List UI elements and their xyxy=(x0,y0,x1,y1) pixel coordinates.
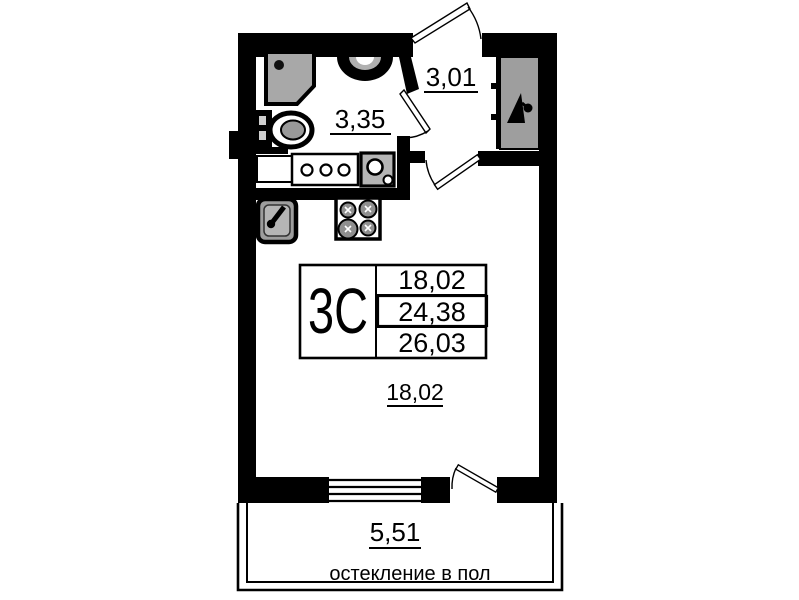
vanity-counter xyxy=(257,154,358,185)
wall-bottom-right xyxy=(497,477,557,503)
shower-tray xyxy=(266,52,314,104)
wall-left xyxy=(238,33,256,503)
living-room-area-label: 18,02 xyxy=(386,379,444,405)
bathroom-area-label: 3,35 xyxy=(335,104,386,134)
kitchen-sink xyxy=(258,199,296,242)
total-area-with-balcony-value: 26,03 xyxy=(398,328,466,358)
living-room-door xyxy=(426,155,481,190)
washing-machine xyxy=(361,153,394,186)
stove xyxy=(336,198,380,239)
total-area-value: 24,38 xyxy=(398,297,466,327)
wardrobe xyxy=(500,57,539,149)
counter-knob-icon xyxy=(339,165,350,176)
toilet-tank-detail xyxy=(259,131,266,140)
living-area-value: 18,02 xyxy=(398,265,466,295)
toilet xyxy=(256,110,312,148)
floor-plan-drawing: 3C 18,02 24,38 26,03 3,35 3,01 18,02 5,5… xyxy=(0,0,799,600)
living-room-door-swing-arc xyxy=(426,160,435,185)
faucet-base-icon xyxy=(267,220,275,228)
floor-plan-page: 3C 18,02 24,38 26,03 3,35 3,01 18,02 5,5… xyxy=(0,0,799,600)
window xyxy=(329,477,421,503)
living-room-door-leaf xyxy=(434,155,480,190)
burner-icon xyxy=(339,220,358,239)
wardrobe-pivot-lower xyxy=(491,114,496,120)
unit-type-label: 3C xyxy=(308,275,368,347)
wall-right xyxy=(539,33,557,503)
balcony-area-label: 5,51 xyxy=(370,517,421,547)
balcony-glazing-note: остекление в пол xyxy=(329,563,490,585)
burner-icon xyxy=(361,221,376,236)
counter-divider xyxy=(256,147,288,154)
kitchen-sink-inner xyxy=(264,205,290,236)
entrance-door xyxy=(411,3,481,43)
area-info-table: 3C 18,02 24,38 26,03 xyxy=(300,265,487,358)
washbasin xyxy=(337,57,393,81)
washing-machine-dial-icon xyxy=(384,176,393,185)
balcony-door-leaf xyxy=(456,465,499,492)
burner-icon xyxy=(341,203,356,218)
wall-bottom-left xyxy=(238,477,329,503)
wall-hall-south xyxy=(478,151,539,166)
wall-bathroom-east-upper xyxy=(399,57,419,94)
counter-left-section xyxy=(257,156,292,182)
shower xyxy=(266,52,314,104)
bathroom-door xyxy=(400,90,430,138)
hall-area-label: 3,01 xyxy=(426,62,477,92)
balcony-door xyxy=(452,465,498,492)
bathroom-door-leaf xyxy=(400,90,430,133)
shower-drain-icon xyxy=(274,60,284,70)
wardrobe-pivot-upper xyxy=(491,83,496,89)
entrance-door-swing-arc xyxy=(468,7,481,39)
burner-icon xyxy=(360,201,377,218)
toilet-tank-detail xyxy=(259,116,266,125)
entrance-door-leaf xyxy=(411,3,470,43)
wall-door-jamb xyxy=(410,151,425,163)
wall-bathroom-east-lower xyxy=(397,136,410,200)
balcony-door-swing-arc xyxy=(452,468,456,489)
wall-left-pilaster xyxy=(229,131,240,159)
washing-machine-door-icon xyxy=(368,160,383,175)
counter-knob-icon xyxy=(302,165,313,176)
toilet-bowl-inner xyxy=(281,121,305,140)
counter-knob-icon xyxy=(321,165,332,176)
wall-bottom-pier xyxy=(421,477,450,503)
